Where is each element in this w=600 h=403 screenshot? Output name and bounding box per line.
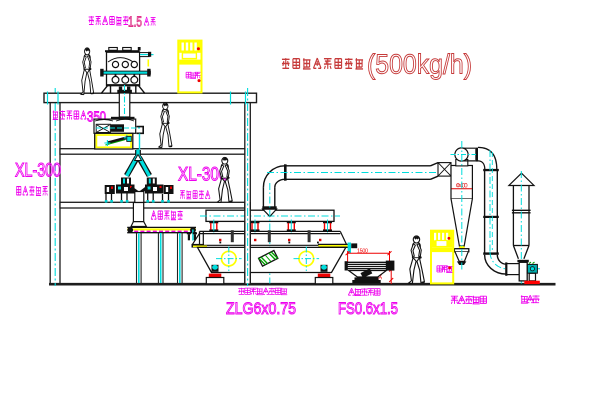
svg-text:ZLG6x0.75: ZLG6x0.75 (226, 299, 296, 318)
svg-text:XL-300: XL-300 (15, 161, 61, 182)
svg-text:FS0.6x1.5: FS0.6x1.5 (338, 299, 398, 318)
svg-text:1.5: 1.5 (128, 15, 142, 31)
svg-text:(500kg/h): (500kg/h) (367, 49, 472, 80)
svg-text:1500: 1500 (357, 248, 368, 254)
